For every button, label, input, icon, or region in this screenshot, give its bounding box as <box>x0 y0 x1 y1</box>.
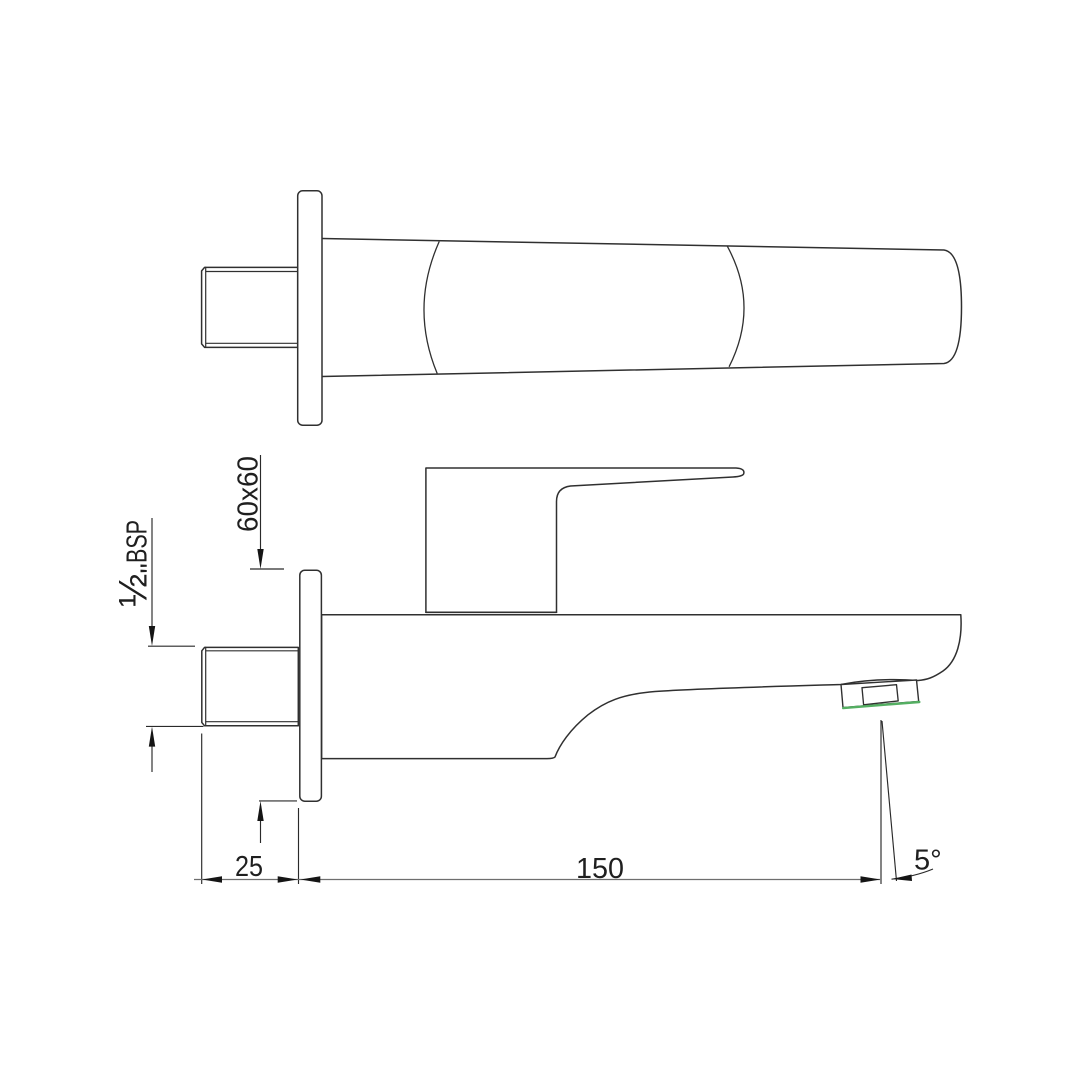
svg-text:": " <box>135 563 167 573</box>
svg-text:5°: 5° <box>914 845 942 877</box>
svg-text:½: ½ <box>111 574 155 607</box>
svg-text:BSP: BSP <box>121 520 153 563</box>
svg-text:150: 150 <box>576 853 624 885</box>
svg-text:25: 25 <box>235 851 263 883</box>
svg-text:60x60: 60x60 <box>233 456 265 532</box>
